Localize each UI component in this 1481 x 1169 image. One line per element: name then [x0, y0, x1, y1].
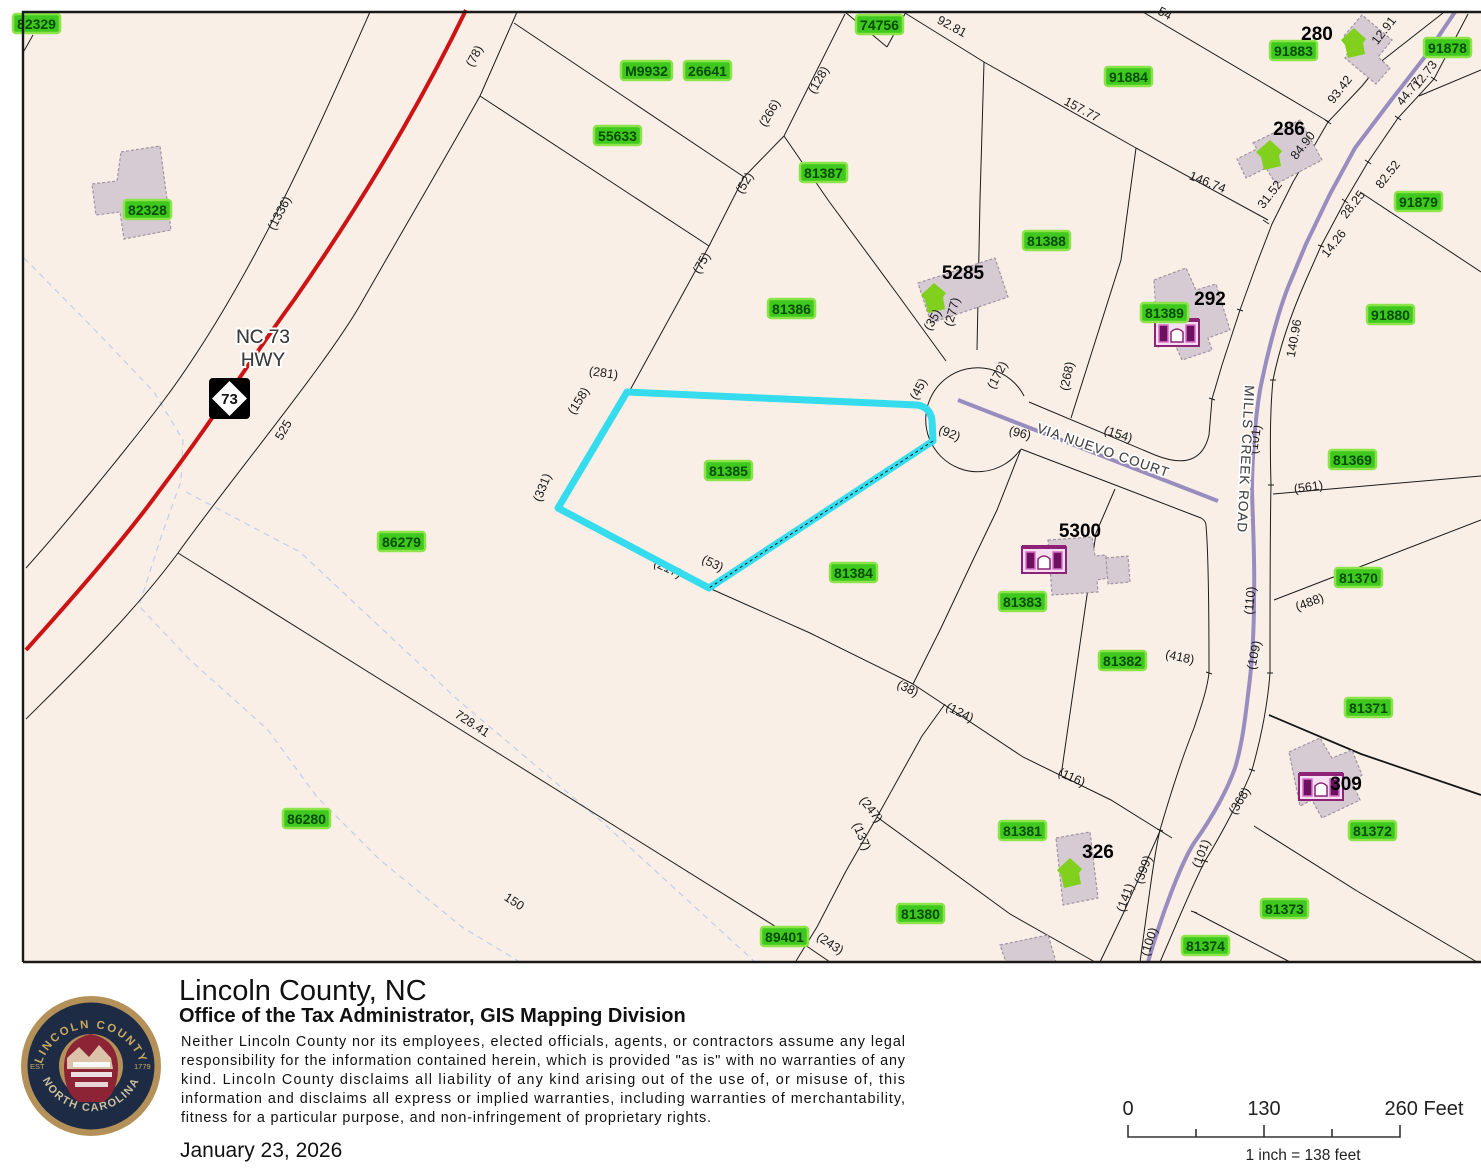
svg-text:82328: 82328	[128, 202, 167, 218]
svg-text:86280: 86280	[287, 811, 326, 827]
svg-text:81373: 81373	[1265, 901, 1304, 917]
svg-text:260 Feet: 260 Feet	[1385, 1098, 1464, 1120]
svg-text:81388: 81388	[1027, 233, 1066, 249]
svg-text:responsibility for the informa: responsibility for the information conta…	[181, 1053, 906, 1069]
svg-text:81389: 81389	[1145, 305, 1184, 321]
svg-text:86279: 86279	[382, 534, 421, 550]
svg-text:81372: 81372	[1353, 823, 1392, 839]
svg-text:309: 309	[1330, 774, 1362, 795]
svg-text:81371: 81371	[1349, 700, 1388, 716]
svg-text:0: 0	[1122, 1098, 1133, 1120]
svg-text:HWY: HWY	[241, 350, 286, 371]
svg-text:81385: 81385	[709, 463, 748, 479]
svg-text:Lincoln County, NC: Lincoln County, NC	[179, 975, 427, 1007]
svg-text:74756: 74756	[860, 17, 899, 33]
svg-text:81369: 81369	[1333, 452, 1372, 468]
svg-text:91880: 91880	[1371, 307, 1410, 323]
svg-text:Neither Lincoln County nor its: Neither Lincoln County nor its employees…	[181, 1034, 905, 1050]
svg-text:26641: 26641	[688, 63, 727, 79]
svg-text:280: 280	[1301, 24, 1333, 45]
svg-text:January 23, 2026: January 23, 2026	[180, 1139, 342, 1162]
svg-text:130: 130	[1247, 1098, 1280, 1120]
svg-text:5285: 5285	[942, 263, 985, 284]
svg-text:81384: 81384	[834, 565, 873, 581]
svg-text:81381: 81381	[1003, 823, 1042, 839]
svg-text:326: 326	[1082, 842, 1114, 863]
svg-text:286: 286	[1273, 119, 1305, 140]
svg-text:Office of the Tax Administrato: Office of the Tax Administrator, GIS Map…	[179, 1005, 686, 1027]
svg-text:81370: 81370	[1339, 570, 1378, 586]
svg-text:55633: 55633	[598, 128, 637, 144]
svg-text:81382: 81382	[1103, 653, 1142, 669]
svg-text:81387: 81387	[804, 165, 843, 181]
svg-text:81374: 81374	[1186, 938, 1225, 954]
svg-text:91883: 91883	[1274, 43, 1313, 59]
svg-text:292: 292	[1194, 289, 1226, 310]
svg-text:89401: 89401	[765, 929, 804, 945]
svg-text:M9932: M9932	[625, 63, 668, 79]
svg-text:91878: 91878	[1428, 40, 1467, 56]
svg-text:5300: 5300	[1059, 521, 1101, 542]
svg-text:73: 73	[221, 391, 238, 408]
svg-text:1779: 1779	[134, 1062, 151, 1071]
svg-text:(110): (110)	[1242, 586, 1259, 616]
svg-text:1 inch = 138 feet: 1 inch = 138 feet	[1245, 1147, 1361, 1164]
svg-text:NC 73: NC 73	[236, 327, 290, 348]
svg-text:91879: 91879	[1399, 194, 1438, 210]
svg-text:fitness for a particular purpo: fitness for a particular purpose, and no…	[181, 1110, 711, 1126]
svg-text:91884: 91884	[1109, 69, 1148, 85]
svg-text:information and disclaims all: information and disclaims all express or…	[181, 1091, 905, 1107]
svg-text:81383: 81383	[1003, 594, 1042, 610]
svg-text:EST: EST	[30, 1062, 45, 1071]
svg-text:81386: 81386	[772, 301, 811, 317]
svg-text:81380: 81380	[901, 906, 940, 922]
